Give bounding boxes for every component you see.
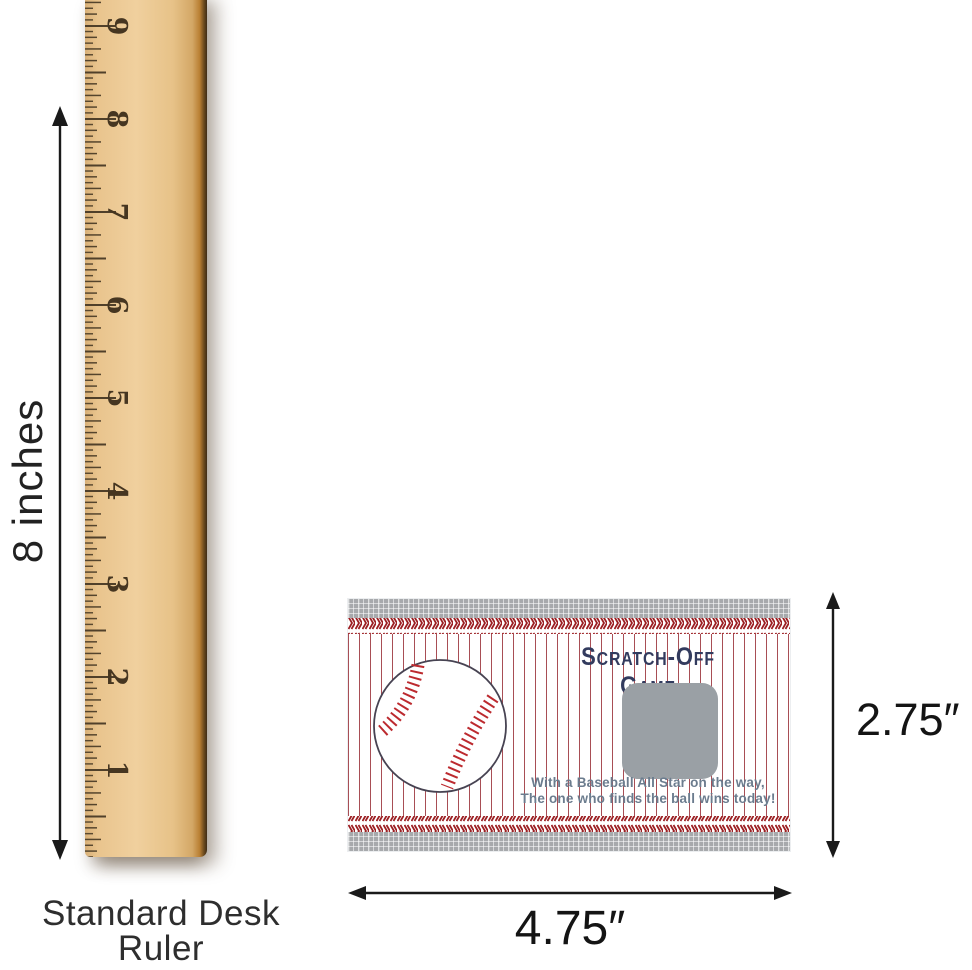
- product-dimension-image: 9 8 7 6 5 4 3 2 1 8 inches Standard Desk…: [0, 0, 972, 970]
- ruler-number-8: 8: [102, 105, 132, 133]
- gingham-border-bottom: [348, 832, 790, 851]
- stitch-border-bottom: [348, 816, 790, 832]
- stitch-border-top: [348, 618, 790, 634]
- ruler-number-1: 1: [102, 756, 132, 784]
- card-height-label: 2.75″: [856, 694, 960, 746]
- ruler-caption: Standard Desk Ruler Inches: [0, 896, 322, 970]
- ruler-number-3: 3: [102, 570, 132, 598]
- ruler-caption-line1: Standard Desk Ruler: [0, 896, 322, 966]
- card-message-line2: The one who finds the ball wins today!: [498, 791, 798, 807]
- card-width-label: 4.75″: [470, 901, 670, 956]
- card-height-arrow-icon: [821, 590, 845, 860]
- wooden-ruler: 9 8 7 6 5 4 3 2 1: [85, 0, 207, 857]
- ruler-number-6: 6: [102, 291, 132, 319]
- gingham-border-top: [348, 599, 790, 618]
- card-message: With a Baseball All Star on the way, The…: [498, 775, 798, 807]
- ruler-number-7: 7: [102, 198, 132, 226]
- scratch-off-game-card: Scratch-Off Game With a Baseball All Sta…: [348, 599, 790, 851]
- card-message-line1: With a Baseball All Star on the way,: [498, 775, 798, 791]
- ruler-height-label: 8 inches: [3, 361, 53, 601]
- ruler-number-9: 9: [102, 12, 132, 40]
- ruler-number-5: 5: [102, 384, 132, 412]
- ruler-number-2: 2: [102, 663, 132, 691]
- scratch-panel: [622, 683, 718, 779]
- ruler-number-4: 4: [102, 477, 132, 505]
